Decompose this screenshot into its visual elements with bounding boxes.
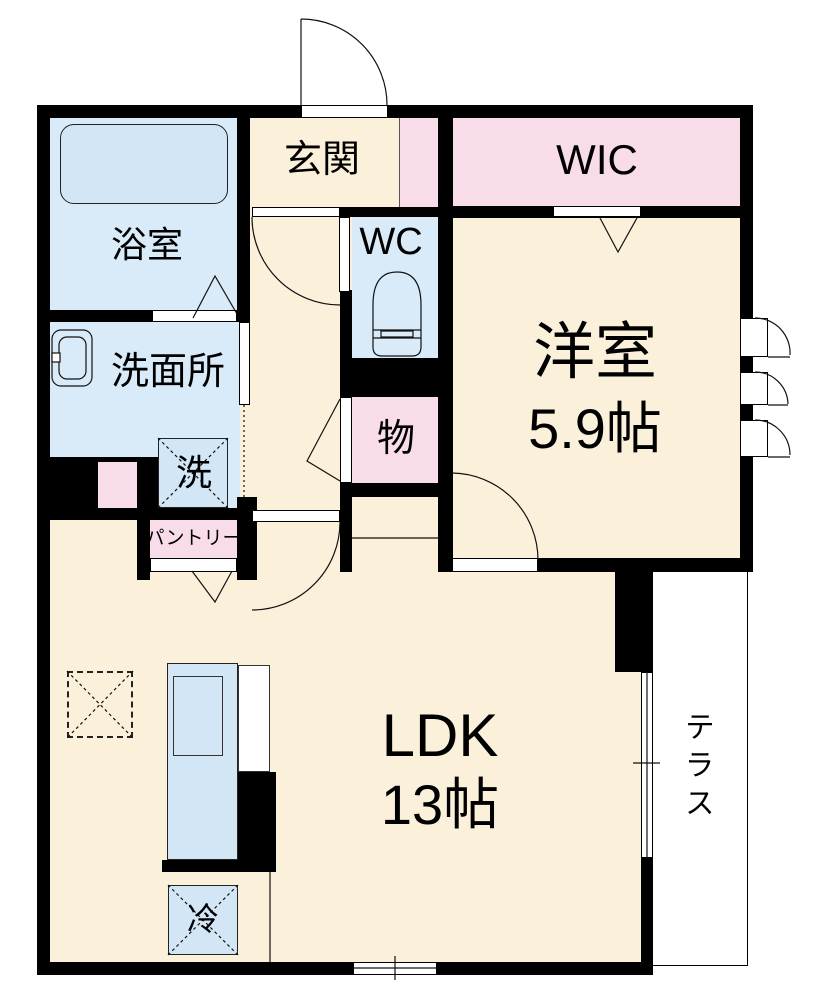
pantry-label: パントリー	[150, 528, 237, 550]
wall-counter-end	[162, 860, 238, 872]
wall-kitchen-block	[238, 772, 276, 872]
pantry-door-opening[interactable]	[150, 558, 237, 572]
wall-under-washroom-2	[50, 508, 257, 520]
wic-label: WIC	[547, 138, 647, 183]
wall-bottom	[37, 962, 653, 975]
floor-hatch	[67, 671, 133, 738]
washroom-cabinet	[98, 462, 137, 508]
ldk-size: 13帖	[340, 772, 540, 838]
west-window-1	[740, 318, 768, 357]
wall-terrace-pier	[615, 558, 653, 672]
bathroom-label: 浴室	[92, 222, 202, 267]
floor-plan: 浴室 玄関 WIC 洗面所 WC 洗 物 パントリー 洋室 5.9帖 LDK 1…	[0, 0, 817, 997]
kitchen-side-counter	[238, 665, 270, 772]
west-window-3	[740, 420, 768, 457]
washroom-sliding-door[interactable]	[239, 322, 250, 405]
bathroom-door-opening[interactable]	[152, 310, 237, 322]
western-room-label: 洋室	[475, 315, 715, 390]
terrace-sliding-door[interactable]	[641, 672, 653, 858]
refrigerator-label: 冷	[185, 902, 221, 938]
entry-door-arc	[301, 19, 387, 105]
wc-door-leaf[interactable]	[339, 217, 350, 292]
genkan-hall-opening[interactable]	[252, 207, 340, 217]
west-room-door-opening[interactable]	[452, 558, 538, 572]
wall-left	[37, 105, 50, 975]
wic-door-opening[interactable]	[553, 206, 641, 217]
bottom-window	[353, 962, 437, 975]
entry-door-opening[interactable]	[301, 105, 388, 118]
wall-west-left	[438, 105, 453, 572]
wall-genkan-bottom	[340, 207, 453, 217]
kitchen-sink	[173, 676, 223, 756]
western-room-size: 5.9帖	[475, 395, 715, 463]
laundry-label: 洗	[175, 453, 213, 493]
terrace-label: テラス	[672, 700, 720, 835]
wall-top	[37, 105, 753, 118]
ldk-label: LDK	[340, 702, 540, 768]
storage-door-opening[interactable]	[340, 397, 352, 483]
wall-ldk-right-lower	[641, 858, 653, 975]
wall-storage-bottom	[340, 483, 452, 497]
storage-label: 物	[376, 420, 416, 460]
bathtub	[60, 124, 228, 204]
wc-label: WC	[356, 222, 426, 264]
washroom-label: 洗面所	[107, 352, 229, 394]
wall-bath-genkan	[237, 118, 250, 322]
shoe-storage	[399, 118, 439, 207]
west-window-2	[740, 372, 768, 405]
hall-ldk-opening[interactable]	[252, 510, 340, 522]
wall-wc-storage	[340, 358, 452, 397]
genkan-label: 玄関	[262, 138, 382, 183]
